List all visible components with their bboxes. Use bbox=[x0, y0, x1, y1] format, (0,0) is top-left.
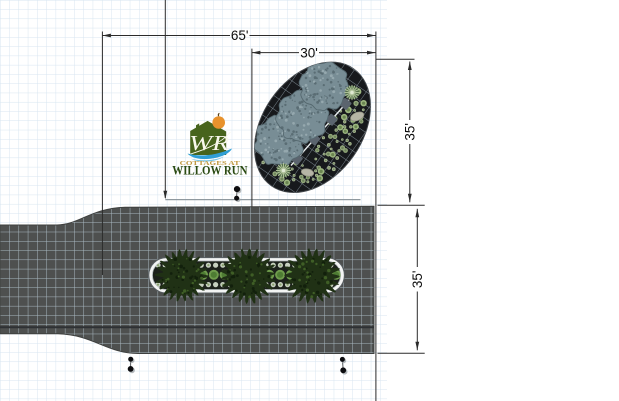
svg-text:35': 35' bbox=[402, 123, 417, 141]
svg-text:65': 65' bbox=[231, 28, 249, 43]
svg-text:35': 35' bbox=[410, 271, 425, 289]
svg-text:WR: WR bbox=[189, 131, 229, 155]
svg-text:WILLOW RUN: WILLOW RUN bbox=[172, 163, 248, 178]
svg-text:30': 30' bbox=[300, 45, 318, 60]
